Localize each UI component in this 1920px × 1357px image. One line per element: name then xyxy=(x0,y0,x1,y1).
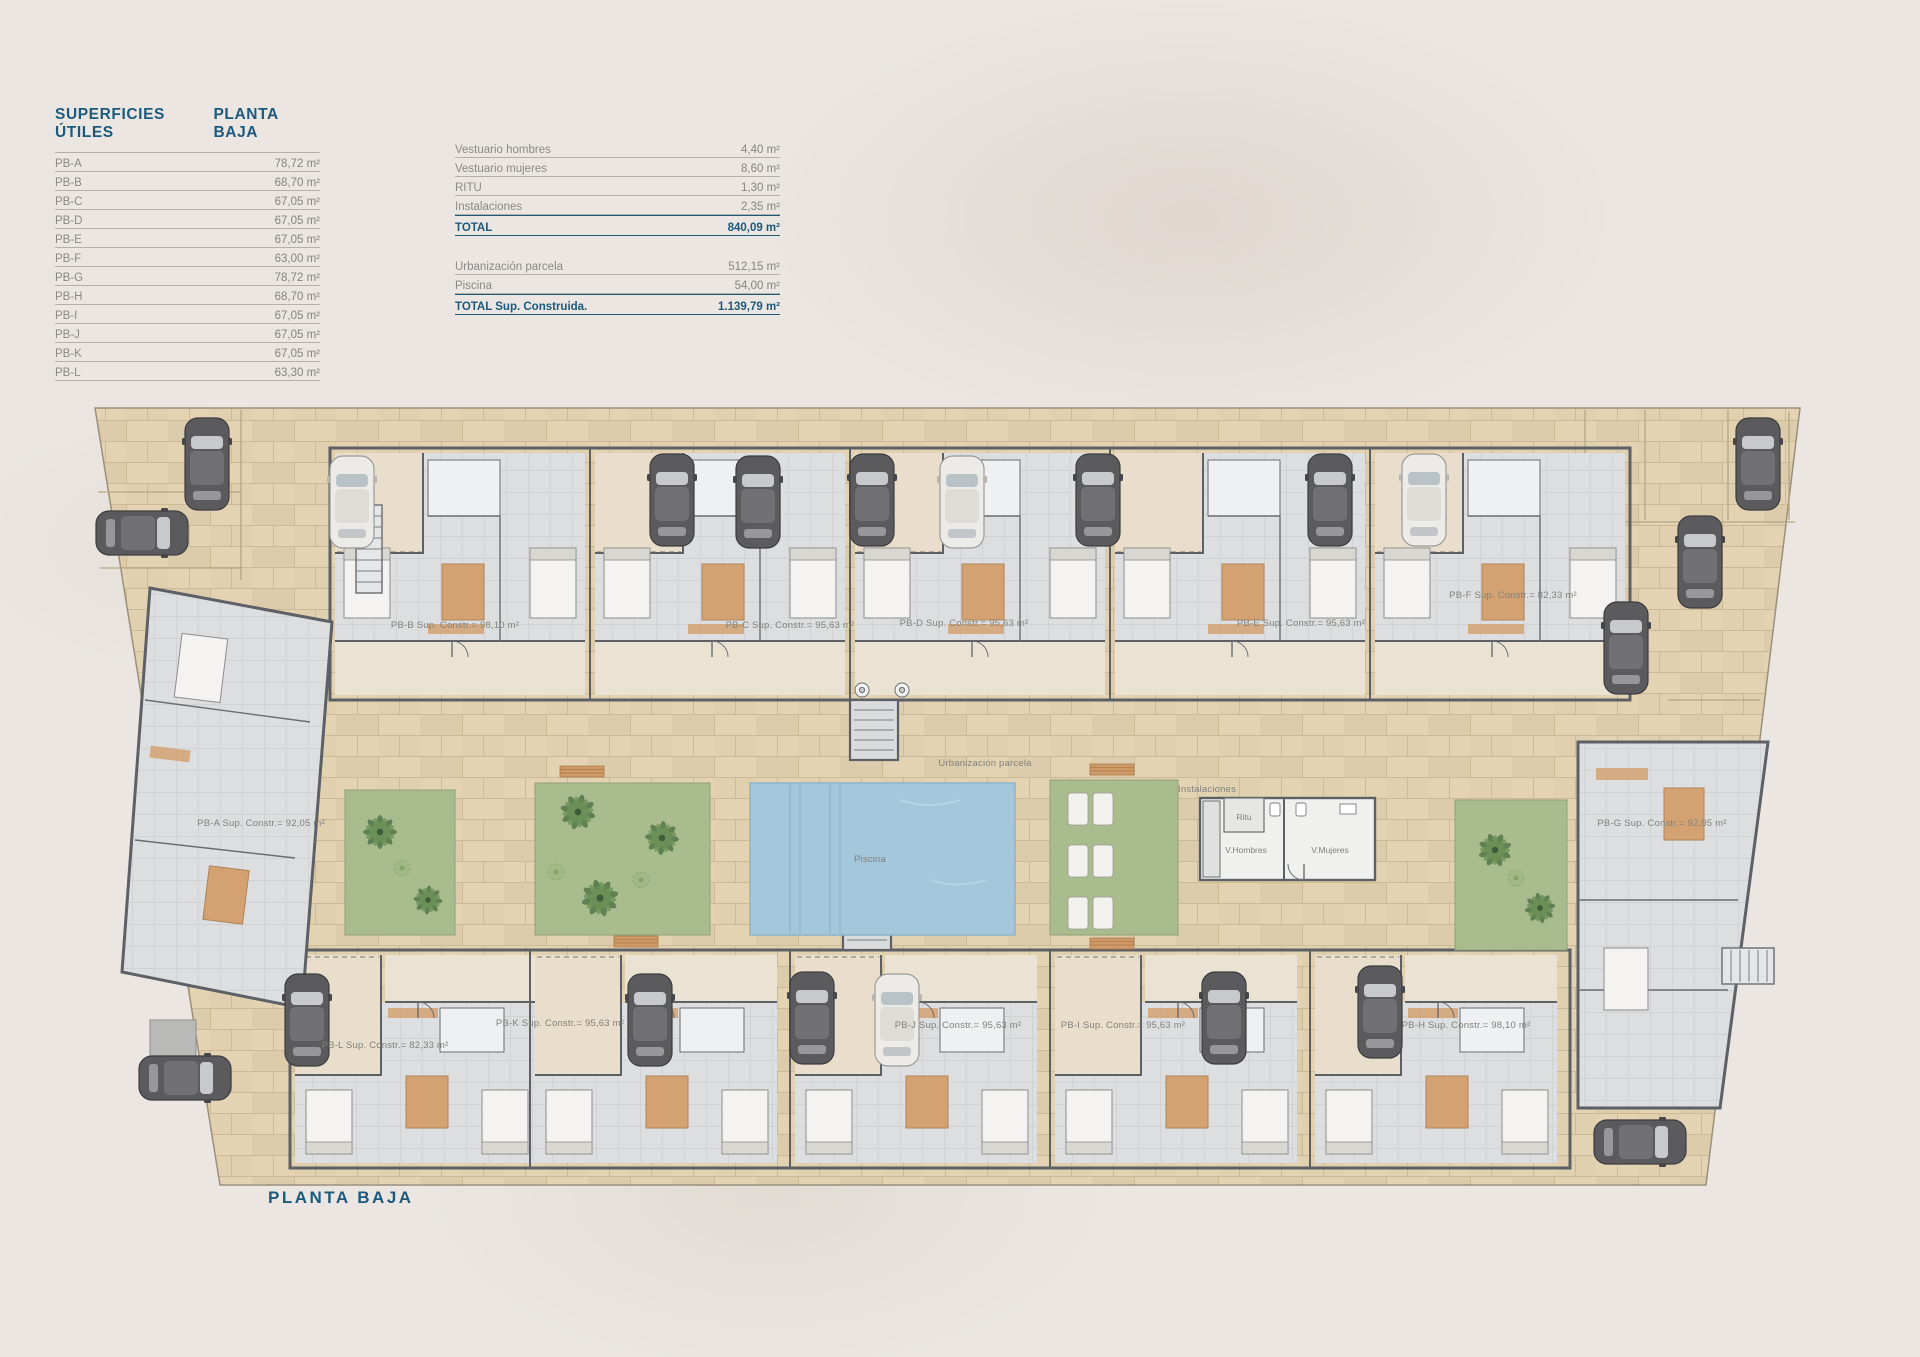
summary-panel: Vestuario hombres4,40 m²Vestuario mujere… xyxy=(455,139,780,315)
garden-2 xyxy=(535,783,710,935)
summary-total2-label: TOTAL Sup. Construida. xyxy=(455,301,587,313)
summary-total-row: TOTAL 840,09 m² xyxy=(455,215,780,236)
car-icon xyxy=(937,456,987,548)
car-icon xyxy=(847,454,897,546)
surface-row: PB-E67,05 m² xyxy=(55,229,320,248)
unit-pb-g xyxy=(1578,742,1774,1108)
surface-row: PB-C67,05 m² xyxy=(55,191,320,210)
car-icon xyxy=(1675,516,1725,608)
surfaces-panel: SUPERFICIES ÚTILES PLANTA BAJA PB-A78,72… xyxy=(55,106,320,381)
summary-row: Piscina54,00 m² xyxy=(455,275,780,294)
car-icon xyxy=(1355,966,1405,1058)
car-icon xyxy=(96,508,188,558)
instalaciones-label: Instalaciones xyxy=(1178,784,1236,795)
summary-table: Vestuario hombres4,40 m²Vestuario mujere… xyxy=(455,139,780,215)
unit-label-pb-c: PB-C Sup. Constr.= 95,63 m² xyxy=(726,620,855,631)
surface-row: PB-L63,30 m² xyxy=(55,362,320,381)
unit-label-pb-d: PB-D Sup. Constr.= 95,63 m² xyxy=(900,618,1029,629)
summary-row: Vestuario mujeres8,60 m² xyxy=(455,158,780,177)
car-icon xyxy=(1305,454,1355,546)
summary-total2-value: 1.139,79 m² xyxy=(718,301,780,313)
instalaciones-block xyxy=(1200,798,1375,880)
surface-row: PB-H68,70 m² xyxy=(55,286,320,305)
vestuario-hombres-label: V.Hombres xyxy=(1225,845,1267,855)
vestuario-mujeres-label: V.Mujeres xyxy=(1311,845,1348,855)
surfaces-table: PB-A78,72 m²PB-B68,70 m²PB-C67,05 m²PB-D… xyxy=(55,152,320,381)
bush-icon xyxy=(1508,870,1524,886)
car-icon xyxy=(282,974,332,1066)
car-icon xyxy=(787,972,837,1064)
surface-row: PB-D67,05 m² xyxy=(55,210,320,229)
surfaces-title: SUPERFICIES ÚTILES xyxy=(55,106,213,142)
ritu-label: Ritu xyxy=(1236,812,1251,822)
bush-icon xyxy=(548,864,564,880)
summary-row: Vestuario hombres4,40 m² xyxy=(455,139,780,158)
car-icon xyxy=(1073,454,1123,546)
car-icon xyxy=(1601,602,1651,694)
surface-row: PB-B68,70 m² xyxy=(55,172,320,191)
unit-label-pb-g: PB-G Sup. Constr.= 92,05 m² xyxy=(1597,818,1726,829)
surface-row: PB-I67,05 m² xyxy=(55,305,320,324)
car-icon xyxy=(1733,418,1783,510)
palm-tree-icon xyxy=(363,815,397,849)
summary-row: RITU1,30 m² xyxy=(455,177,780,196)
unit-label-pb-j: PB-J Sup. Constr.= 95,63 m² xyxy=(895,1020,1022,1031)
surface-row: PB-F63,00 m² xyxy=(55,248,320,267)
unit-label-pb-e: PB-E Sup. Constr.= 95,63 m² xyxy=(1237,618,1365,629)
unit-label-pb-i: PB-I Sup. Constr.= 95,63 m² xyxy=(1061,1020,1185,1031)
surfaces-subtitle: PLANTA BAJA xyxy=(213,106,320,142)
car-icon xyxy=(1199,972,1249,1064)
summary-row: Instalaciones2,35 m² xyxy=(455,196,780,215)
unit-label-pb-h: PB-H Sup. Constr.= 98,10 m² xyxy=(1402,1020,1531,1031)
unit-label-pb-a: PB-A Sup. Constr.= 92,05 m² xyxy=(197,818,325,829)
car-icon xyxy=(625,974,675,1066)
surface-row: PB-A78,72 m² xyxy=(55,152,320,172)
summary-total-value: 840,09 m² xyxy=(728,222,780,234)
car-icon xyxy=(327,456,377,548)
piscina-label: Piscina xyxy=(854,854,887,865)
plan-caption: PLANTA BAJA xyxy=(268,1188,414,1208)
car-icon xyxy=(1399,454,1449,546)
summary-row: Urbanización parcela512,15 m² xyxy=(455,256,780,275)
bush-icon xyxy=(394,860,410,876)
garden-sunbeds xyxy=(1050,764,1178,949)
unit-label-pb-l: PB-L Sup. Constr.= 82,33 m² xyxy=(322,1040,449,1051)
unit-pb-a xyxy=(122,588,332,1008)
surface-row: PB-G78,72 m² xyxy=(55,267,320,286)
car-icon xyxy=(647,454,697,546)
urbanizacion-label: Urbanización parcela xyxy=(938,758,1032,769)
unit-label-pb-k: PB-K Sup. Constr.= 95,63 m² xyxy=(496,1018,624,1029)
bush-icon xyxy=(633,872,649,888)
surface-row: PB-K67,05 m² xyxy=(55,343,320,362)
car-icon xyxy=(182,418,232,510)
unit-label-pb-b: PB-B Sup. Constr.= 98,10 m² xyxy=(391,620,519,631)
surface-row: PB-J67,05 m² xyxy=(55,324,320,343)
unit-label-pb-f: PB-F Sup. Constr.= 82,33 m² xyxy=(1449,590,1577,601)
summary-total2-row: TOTAL Sup. Construida. 1.139,79 m² xyxy=(455,294,780,315)
car-icon xyxy=(733,456,783,548)
car-icon xyxy=(139,1053,231,1103)
summary-table-2: Urbanización parcela512,15 m²Piscina54,0… xyxy=(455,256,780,294)
car-icon xyxy=(1594,1117,1686,1167)
summary-total-label: TOTAL xyxy=(455,222,492,234)
